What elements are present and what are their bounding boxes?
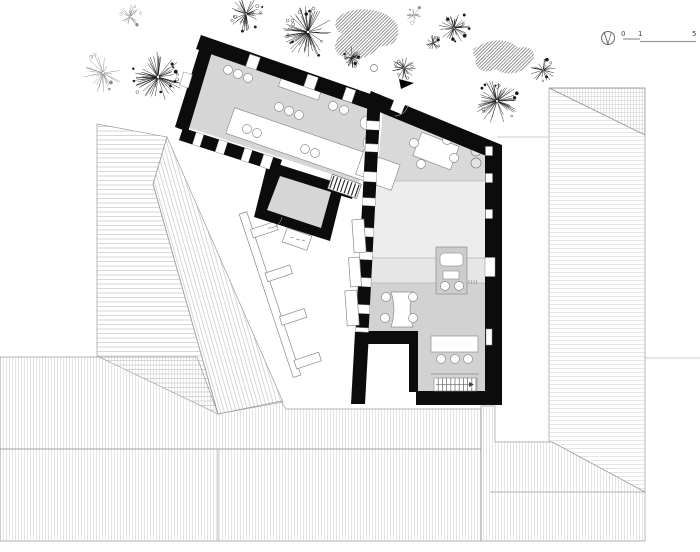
chair <box>301 145 310 154</box>
tree-branch <box>531 67 543 69</box>
tree-branch <box>492 81 497 100</box>
chair <box>437 355 446 364</box>
chair <box>409 293 418 302</box>
tree-dot <box>463 14 466 17</box>
tree <box>132 52 181 100</box>
tree-dot <box>132 68 134 70</box>
tree-dot <box>317 54 319 56</box>
tree <box>84 53 120 92</box>
tree-branch <box>97 74 102 92</box>
north-needle-2 <box>608 34 611 45</box>
tree-branch <box>104 71 120 73</box>
window-gap <box>486 329 492 345</box>
tree-dot <box>160 91 162 93</box>
north-symbol <box>602 32 615 45</box>
window-gap <box>486 210 493 219</box>
tree-dot <box>511 115 513 117</box>
tree-dot <box>259 11 261 13</box>
tree-branch <box>150 57 157 76</box>
tree-dot <box>120 12 123 15</box>
tree-dot <box>468 27 470 29</box>
tree-branch <box>104 73 112 74</box>
chair <box>410 139 419 148</box>
chair <box>340 106 349 115</box>
tree-dot <box>484 84 486 86</box>
wall-east-wing-south <box>416 391 502 405</box>
tree-branch <box>405 68 416 69</box>
window-shutter <box>349 257 362 287</box>
north-needle <box>604 32 608 44</box>
tree-dot <box>292 23 295 26</box>
kitchen-burner <box>441 282 450 291</box>
tree-branch <box>498 101 515 109</box>
bench-stub <box>251 221 278 238</box>
tree-branch <box>498 102 516 112</box>
hedges <box>335 9 534 73</box>
tree-dot <box>231 19 234 22</box>
tree-dot <box>451 38 454 41</box>
tree-dot <box>394 64 396 66</box>
tree-branch <box>485 102 496 113</box>
tree-dot <box>291 19 294 22</box>
tree-dot <box>174 70 178 74</box>
kitchen-sink <box>440 253 463 266</box>
bench-stub <box>279 309 307 326</box>
tree <box>392 58 415 80</box>
tree-dot <box>172 66 174 68</box>
tree-dot <box>286 19 289 22</box>
scale-bar: 0 1 5 <box>621 30 696 42</box>
chair <box>275 103 284 112</box>
tree-dot <box>171 63 174 66</box>
room3-table <box>431 336 478 352</box>
tree-dot <box>291 41 293 43</box>
tree-dot <box>109 81 112 84</box>
tree-dot <box>241 30 244 33</box>
tree <box>406 6 420 24</box>
window-segment <box>359 251 372 260</box>
tree-dot <box>438 45 440 47</box>
tree-dot <box>545 76 548 79</box>
tree-branch <box>308 11 315 31</box>
chair <box>382 293 391 302</box>
wall-segment <box>357 286 371 305</box>
window-segment <box>366 121 379 131</box>
chair <box>409 314 418 323</box>
tree-dot <box>174 80 176 82</box>
tree-dot <box>133 80 135 82</box>
chair <box>451 355 460 364</box>
window-segment <box>363 172 377 183</box>
tree-dot <box>496 85 500 89</box>
tree-dot <box>169 85 171 87</box>
wall-segment <box>364 152 378 173</box>
tree <box>120 4 142 26</box>
chair <box>417 160 426 169</box>
tree <box>283 7 331 57</box>
site-plan-drawing: 0 1 5 <box>0 0 700 552</box>
bench-stub <box>265 265 293 282</box>
tree-dot <box>354 65 356 67</box>
tree-dot <box>398 73 400 75</box>
tree-dot <box>108 88 110 90</box>
window-shutter <box>345 290 359 326</box>
window-segment <box>365 144 378 153</box>
tree-dot <box>139 12 142 15</box>
wall-segment <box>365 130 379 145</box>
tree-dot <box>542 80 544 82</box>
chair <box>381 314 390 323</box>
bench-stub <box>294 352 322 369</box>
tree-dot <box>462 23 464 25</box>
tree-dot <box>411 65 414 68</box>
tree <box>531 58 556 82</box>
tree <box>477 81 518 122</box>
chair <box>234 70 243 79</box>
tree-dot <box>343 53 345 55</box>
tree-dot <box>254 26 257 29</box>
tree-branch <box>450 17 453 27</box>
tree <box>426 35 440 49</box>
tree-dot <box>481 87 484 90</box>
tree-dot <box>256 5 259 8</box>
hedge-shrub <box>335 9 398 59</box>
window-gap <box>486 174 493 183</box>
tree-branch <box>414 14 419 15</box>
tree-dot <box>308 10 310 12</box>
chair <box>243 125 252 134</box>
tree-dot <box>176 73 178 75</box>
tree-dot <box>176 78 179 81</box>
east-roof <box>549 88 645 492</box>
tree-branch <box>130 17 137 23</box>
chair <box>285 107 294 116</box>
tree-dot <box>312 7 315 10</box>
chair <box>295 111 304 120</box>
tree-branch <box>428 40 433 43</box>
tree-dot <box>321 40 323 42</box>
tree-dot <box>261 6 263 8</box>
tree-branch <box>414 15 415 18</box>
tree-dot <box>354 62 357 65</box>
tree-dot <box>515 92 518 95</box>
floor-room2 <box>372 181 486 258</box>
tree-dot <box>550 62 552 64</box>
tree <box>439 14 470 43</box>
tree-branch <box>103 58 104 72</box>
scale-label-1: 1 <box>638 30 642 38</box>
tree-dot <box>290 42 291 43</box>
wall-notch-right <box>409 344 418 392</box>
tree-dot <box>397 60 400 63</box>
floor-band <box>371 258 486 283</box>
window-gap <box>486 147 493 156</box>
window-segment <box>356 327 369 332</box>
tree-dot <box>409 9 411 11</box>
chair <box>244 74 253 83</box>
planter <box>471 158 481 168</box>
tree-dot <box>446 18 449 21</box>
tree-branch <box>103 66 106 73</box>
tree-dot <box>410 21 413 24</box>
tree-dot <box>135 23 138 26</box>
site-dot <box>371 65 378 72</box>
tree-dot <box>513 96 516 99</box>
entrance-arrow <box>399 79 414 89</box>
south-roof-lower <box>0 449 481 541</box>
scale-label-0: 0 <box>621 30 625 38</box>
tree-dot <box>305 12 308 15</box>
chair <box>224 66 233 75</box>
wall-party-south <box>351 332 369 404</box>
tree-branch <box>309 20 330 31</box>
window-gap <box>485 258 495 277</box>
chair <box>253 129 262 138</box>
chair <box>464 355 473 364</box>
chair <box>450 154 459 163</box>
tree-branch <box>139 74 157 77</box>
tree-dot <box>454 41 456 43</box>
floor-plan-page: 0 1 5 <box>0 0 700 552</box>
window-segment <box>362 198 375 207</box>
tree-branch <box>308 33 316 54</box>
hedge-shrub <box>473 40 534 73</box>
chair <box>311 149 320 158</box>
wall-segment <box>367 103 381 122</box>
tree-dot <box>357 56 360 59</box>
tree-dot <box>418 6 421 9</box>
wall-segment <box>363 182 377 199</box>
tree <box>231 0 263 32</box>
chair <box>329 102 338 111</box>
kitchen-burner <box>455 282 464 291</box>
tree-dot <box>134 6 136 8</box>
tree-dot <box>463 34 466 37</box>
window-shutter <box>352 219 366 253</box>
tree-dot <box>406 77 409 80</box>
kitchen-hob <box>443 271 459 279</box>
tree-branch <box>300 8 308 31</box>
scale-label-5: 5 <box>692 30 696 38</box>
tree-dot <box>136 91 139 94</box>
